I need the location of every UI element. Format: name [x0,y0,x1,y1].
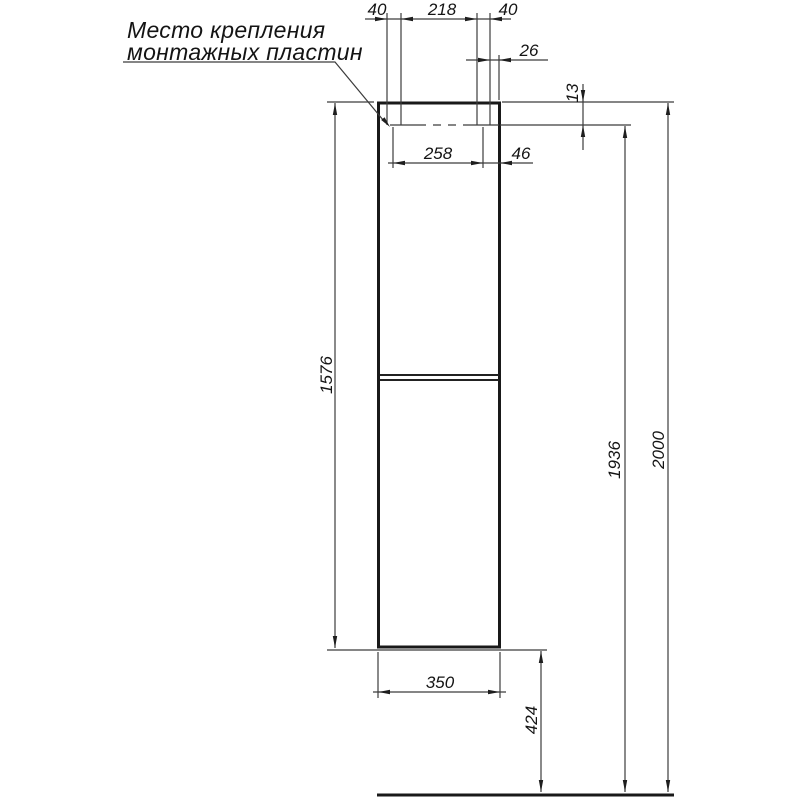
dim-label-total-height: 2000 [649,431,668,470]
arrowhead [488,690,500,694]
drawing-canvas: 40 218 40 26 258 46 350 13 1576 1936 200… [0,0,800,800]
arrowhead [500,161,512,165]
arrowhead [623,780,627,792]
arrowhead [465,17,477,21]
arrowhead [666,103,670,115]
callout-leader [123,62,384,121]
arrowhead [471,161,483,165]
dim-label-cabinet-width: 350 [426,673,455,692]
dim-label-floor-clearance: 424 [522,706,541,734]
arrowhead [393,161,405,165]
cabinet-mounting-drawing: 40 218 40 26 258 46 350 13 1576 1936 200… [0,0,800,800]
arrowhead [539,651,543,663]
dim-label-plate-edge-offset: 26 [519,41,539,60]
cabinet-front-view [379,103,500,647]
arrowhead [666,780,670,792]
arrowhead [378,690,390,694]
arrowhead [499,58,511,62]
callout: Место крепления монтажных пластин [127,17,363,65]
arrowhead [401,17,413,21]
dim-label-plate-left-width: 40 [368,0,387,19]
arrowhead [333,636,337,648]
arrowhead [478,58,490,62]
arrowhead [581,125,585,137]
dimension-lines [335,19,668,792]
dim-label-mount-edge-gap: 46 [512,144,531,163]
dim-label-top-inset: 13 [563,83,582,102]
dim-label-mount-span: 258 [423,144,453,163]
dim-label-plate-spacing: 218 [427,0,457,19]
arrowhead [623,126,627,138]
arrowhead [539,780,543,792]
arrowheads [333,17,670,792]
callout-line2: монтажных пластин [127,39,363,65]
dim-label-mount-line-height: 1936 [605,441,624,479]
arrowhead [333,103,337,115]
dimension-labels: 40 218 40 26 258 46 350 13 1576 1936 200… [317,0,668,734]
dim-label-cabinet-height: 1576 [317,356,336,394]
dim-label-plate-right-width: 40 [499,0,518,19]
